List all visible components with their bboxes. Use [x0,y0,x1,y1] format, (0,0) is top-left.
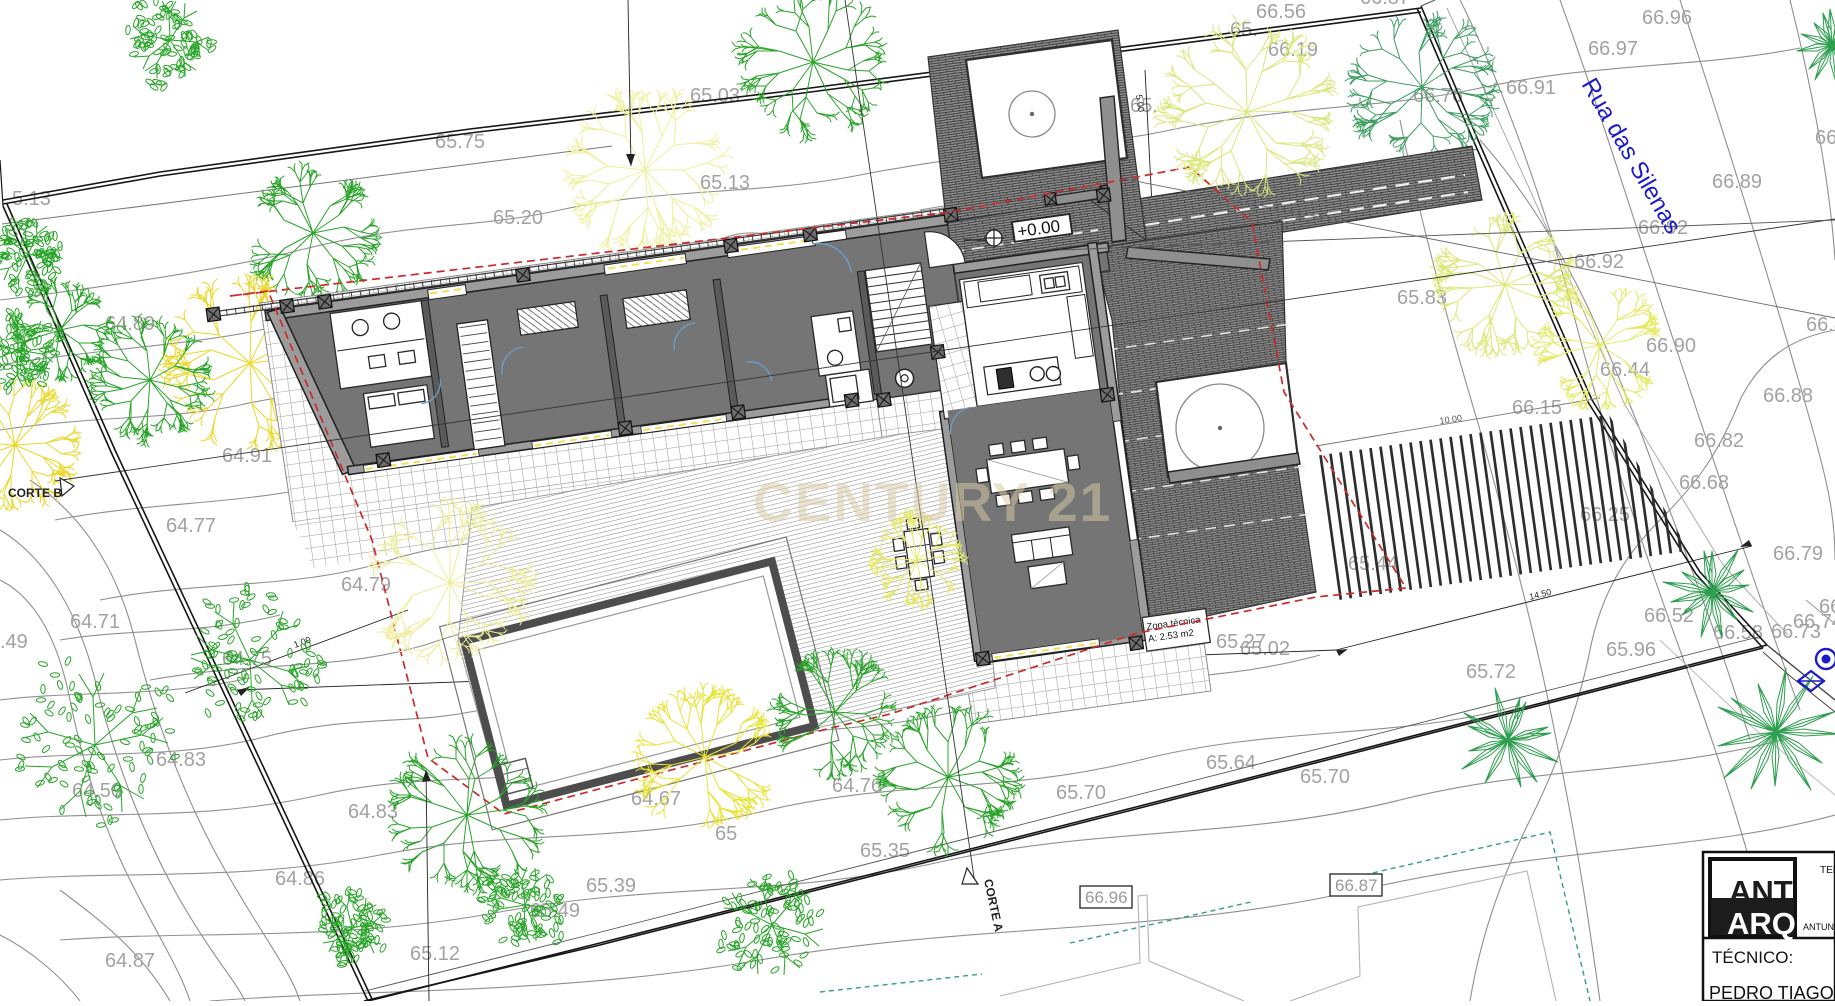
svg-text:65.83: 65.83 [1397,287,1447,309]
svg-text:65.70: 65.70 [1300,766,1350,788]
svg-text:66.96: 66.96 [1642,7,1692,29]
svg-text:66.90: 66.90 [1646,335,1696,357]
svg-text:65.72: 65.72 [1466,661,1516,683]
svg-text:66.92: 66.92 [1574,251,1624,273]
svg-text:TEL: TEL [1820,865,1835,876]
svg-text:66.89: 66.89 [1712,171,1762,193]
svg-text:64.87: 64.87 [105,950,155,972]
svg-text:ARQ: ARQ [1727,906,1796,941]
svg-text:CORTE B: CORTE B [8,486,62,500]
svg-text:66.91: 66.91 [1506,77,1556,99]
svg-text:66.97: 66.97 [1588,38,1638,60]
svg-text:64.83: 64.83 [156,749,206,771]
svg-text:65: 65 [715,823,737,845]
svg-text:64.83: 64.83 [348,801,398,823]
svg-text:66.87: 66.87 [1360,0,1410,9]
svg-text:66.79: 66.79 [1773,543,1823,565]
svg-text:66: 66 [1815,127,1835,149]
svg-text:PEDRO TIAGO: PEDRO TIAGO [1709,983,1834,1001]
svg-text:64.79: 64.79 [341,574,391,596]
svg-text:66.56: 66.56 [1256,1,1306,23]
svg-text:66.82: 66.82 [1694,430,1744,452]
svg-text:65.20: 65.20 [493,207,543,229]
svg-text:ANTUN: ANTUN [1803,922,1834,932]
svg-text:66.69: 66.69 [1819,596,1835,618]
svg-text:CENTURY 21: CENTURY 21 [753,471,1112,533]
svg-text:64.77: 64.77 [166,515,216,537]
svg-text:65.12: 65.12 [410,943,460,965]
svg-text:66.68: 66.68 [1679,472,1729,494]
svg-text:66.15: 66.15 [1512,397,1562,419]
svg-text:ANT: ANT [1729,874,1793,909]
svg-text:65.35: 65.35 [860,840,910,862]
svg-text:65.39: 65.39 [586,875,636,897]
svg-text:64.71: 64.71 [70,611,120,633]
svg-text:.49: .49 [0,631,28,653]
svg-text:64.91: 64.91 [222,445,272,467]
svg-text:66.87: 66.87 [1335,876,1378,895]
svg-text:64.86: 64.86 [275,868,325,890]
svg-text:65.96: 65.96 [1606,639,1656,661]
svg-text:66.88: 66.88 [1763,385,1813,407]
svg-text:65.27: 65.27 [1216,631,1266,653]
svg-text:65.70: 65.70 [1056,782,1106,804]
svg-text:66.52: 66.52 [1644,605,1694,627]
svg-text:66.96: 66.96 [1085,888,1128,907]
svg-text:TÉCNICO:: TÉCNICO: [1712,948,1793,967]
